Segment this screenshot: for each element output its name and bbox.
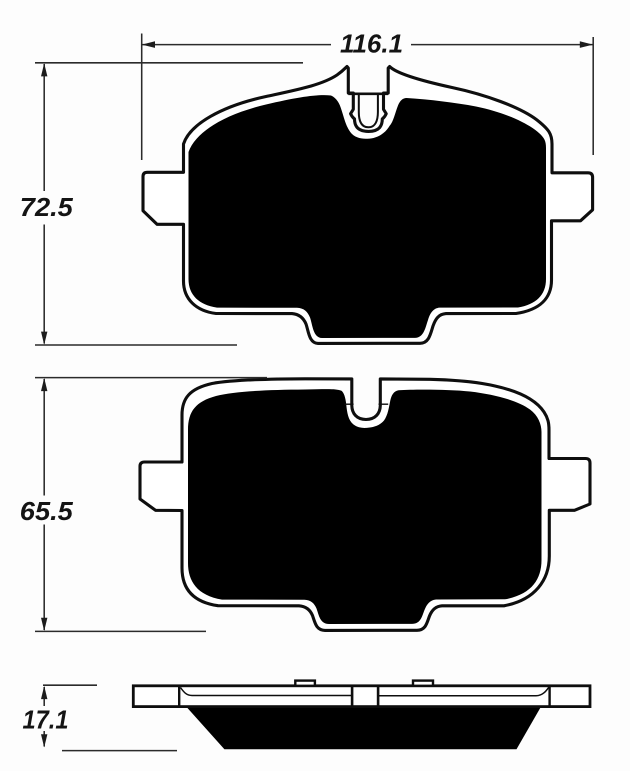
svg-text:17.1: 17.1: [23, 704, 69, 734]
svg-text:72.5: 72.5: [20, 192, 74, 222]
svg-text:65.5: 65.5: [20, 496, 74, 526]
svg-text:116.1: 116.1: [340, 28, 403, 58]
